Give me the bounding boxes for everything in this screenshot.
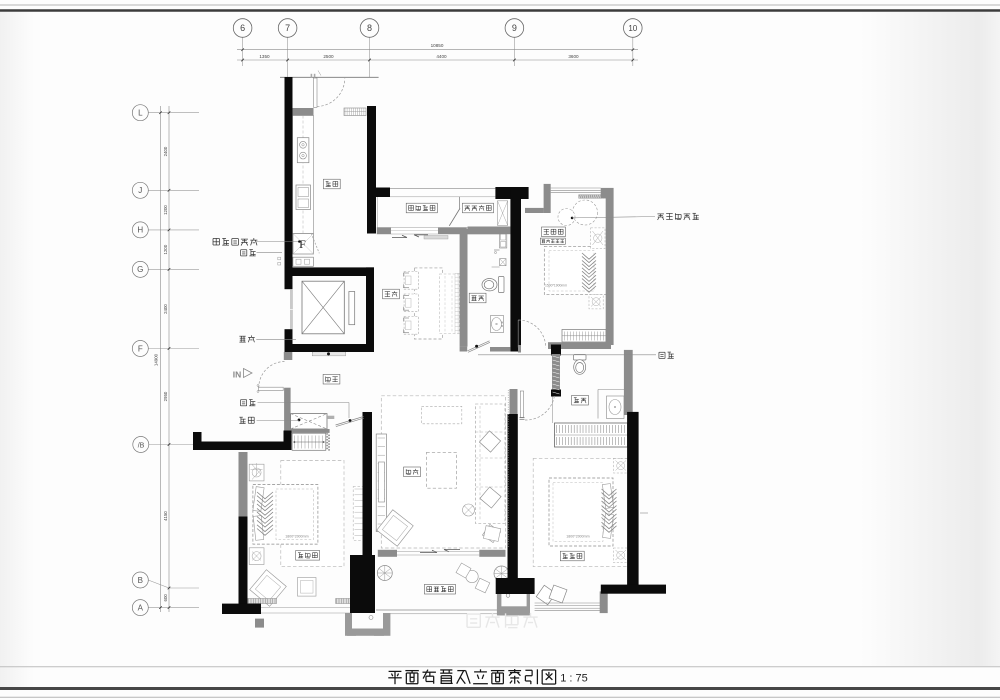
svg-text:2950: 2950: [163, 391, 168, 401]
svg-text:J: J: [138, 186, 142, 195]
svg-text:G: G: [137, 265, 143, 274]
svg-text:A: A: [138, 603, 144, 612]
svg-text:4400: 4400: [436, 54, 447, 59]
svg-text:IN: IN: [233, 370, 242, 380]
svg-text:7: 7: [285, 23, 290, 33]
svg-text:/B: /B: [138, 442, 145, 449]
svg-text:4150: 4150: [163, 511, 168, 521]
svg-text:F: F: [299, 237, 306, 251]
svg-text:600: 600: [163, 594, 168, 602]
svg-text:3600: 3600: [568, 54, 579, 59]
svg-text:H: H: [137, 226, 143, 235]
svg-text:10: 10: [628, 24, 637, 33]
svg-text:2500: 2500: [323, 54, 334, 59]
svg-text:L: L: [138, 109, 143, 118]
svg-text:1800*2000mm: 1800*2000mm: [285, 535, 308, 539]
svg-text:B: B: [138, 576, 143, 585]
svg-text:10850: 10850: [431, 43, 444, 48]
svg-text:1 : 75: 1 : 75: [560, 673, 588, 685]
svg-text:1800*2000mm: 1800*2000mm: [566, 535, 589, 539]
svg-text:1200: 1200: [163, 205, 168, 215]
svg-text:6: 6: [240, 23, 245, 33]
svg-text:1350: 1350: [259, 54, 270, 59]
svg-text:14900: 14900: [154, 353, 159, 366]
svg-text:8: 8: [367, 23, 372, 33]
svg-text:2400: 2400: [163, 146, 168, 156]
svg-text:1500*1900mm: 1500*1900mm: [545, 284, 567, 288]
svg-text:1200: 1200: [163, 244, 168, 254]
svg-text:2400: 2400: [163, 304, 168, 314]
svg-text:9: 9: [512, 23, 517, 33]
svg-text:F: F: [138, 344, 143, 353]
